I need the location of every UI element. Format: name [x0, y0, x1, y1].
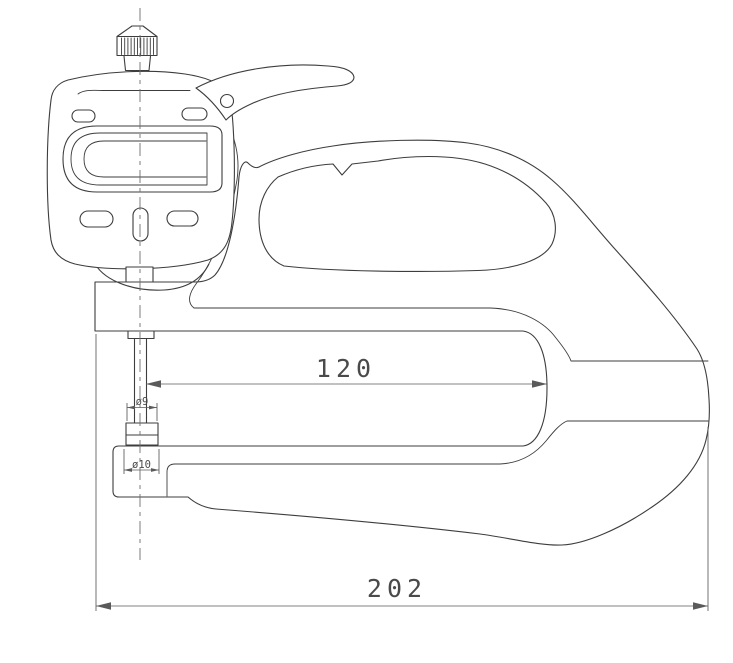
cap-knurling [122, 38, 154, 55]
spindle-shaft [135, 339, 147, 423]
dim-120-arrow-right [532, 380, 547, 388]
dim-120-arrow-left [146, 380, 161, 388]
drawing-canvas: 120 202 ø9 ø10 [0, 0, 733, 663]
dim-o9-arrow-right [149, 406, 157, 410]
dim-120-label: 120 [316, 354, 376, 383]
spindle-assembly [126, 331, 158, 445]
top-cap [117, 26, 157, 71]
frame-face-step-lower [167, 421, 708, 496]
button-bottom-left [80, 211, 113, 227]
dimension-overall-length: 202 [96, 334, 708, 611]
dim-o9-label: ø9 [136, 396, 149, 408]
button-center-slot [133, 208, 148, 241]
dim-o10-arrow-right [151, 468, 159, 472]
technical-drawing-thickness-gauge: 120 202 ø9 ø10 [0, 0, 733, 663]
button-top-right [182, 108, 207, 120]
frame-face-step-upper [190, 122, 708, 361]
lcd-display [63, 126, 222, 192]
button-top-left [72, 110, 95, 122]
lifting-lever [196, 65, 354, 120]
cap-stem [124, 56, 151, 71]
lever-pivot-hole [221, 95, 234, 108]
dim-202-label: 202 [367, 574, 427, 603]
lever-arm [196, 65, 354, 120]
cap-cone [117, 26, 157, 37]
dimension-throat-depth: 120 [146, 354, 547, 388]
dim-o10-label: ø10 [132, 459, 151, 471]
stem-clamp [126, 267, 153, 282]
button-bottom-right [167, 211, 198, 226]
cap-knurl-band [117, 37, 157, 56]
display-bezel [63, 126, 222, 192]
dim-202-arrow-left [96, 602, 111, 610]
frame-handle-cutout [259, 157, 555, 272]
spindle-collar [128, 331, 154, 339]
dim-o10-arrow-left [124, 468, 132, 472]
dim-o9-arrow-left [127, 406, 135, 410]
upper-anvil [126, 423, 158, 445]
dim-202-arrow-right [693, 602, 708, 610]
dimension-lower-anvil: ø10 [124, 449, 159, 474]
dimension-upper-anvil: ø9 [127, 396, 157, 421]
